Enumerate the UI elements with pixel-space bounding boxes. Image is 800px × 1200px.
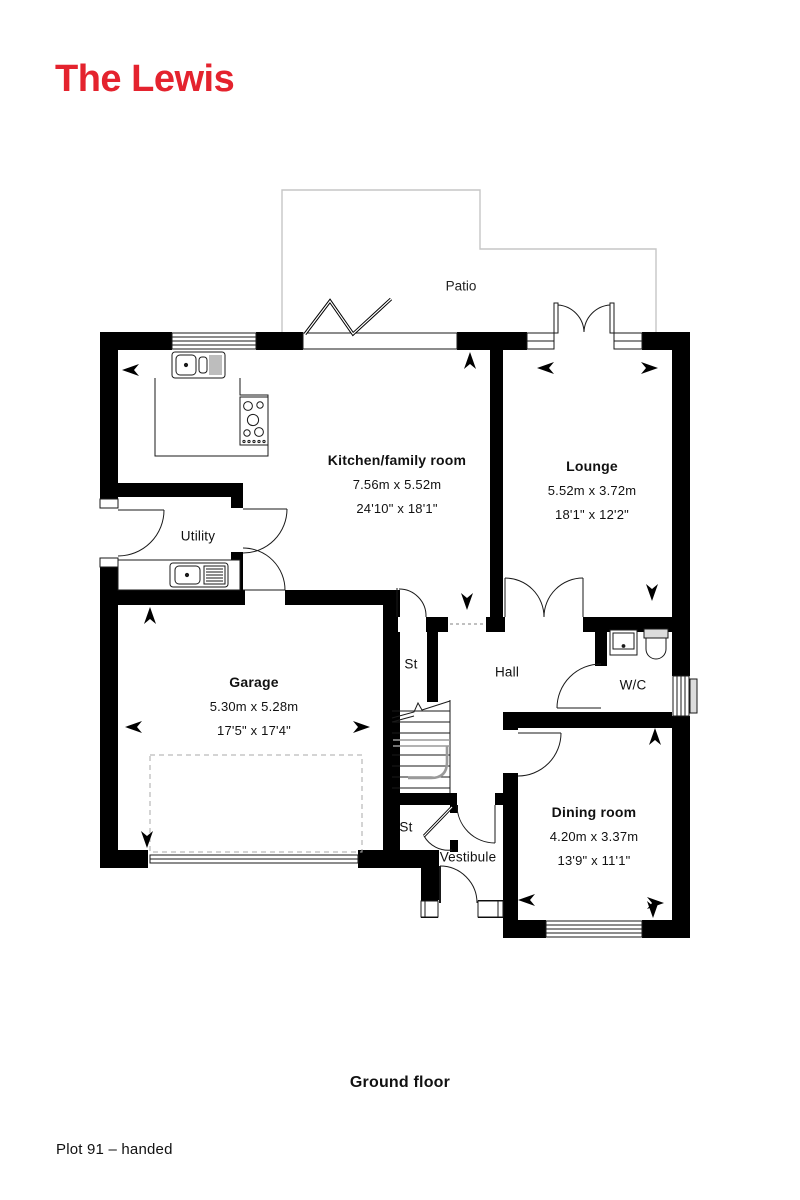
- room-metric: 5.52m x 3.72m: [548, 483, 637, 498]
- wc-door-icon: [557, 664, 601, 708]
- vestibule-hall-door-icon: [457, 805, 495, 843]
- storage-lower-door-icon: [424, 807, 452, 850]
- hall-label: Hall: [495, 665, 519, 680]
- kitchen-sink-icon: [172, 352, 225, 378]
- utility-worktop: [118, 560, 240, 590]
- room-name: Garage: [210, 674, 299, 690]
- room-metric: 5.30m x 5.28m: [210, 699, 299, 714]
- utility-label: Utility: [181, 529, 215, 544]
- floor-caption: Ground floor: [350, 1074, 450, 1092]
- room-metric: 7.56m x 5.52m: [328, 477, 466, 492]
- wc-window-icon: [673, 676, 697, 716]
- garage-parking-outline: [150, 755, 362, 852]
- room-label-garage: Garage 5.30m x 5.28m 17'5" x 17'4": [210, 674, 299, 738]
- room-imperial: 24'10" x 18'1": [328, 501, 466, 516]
- floorplan-page: The Lewis Patio Kitchen/family room 7.56…: [0, 0, 800, 1200]
- storage-upper-label: St: [404, 657, 417, 672]
- room-name: Lounge: [548, 458, 637, 474]
- room-metric: 4.20m x 3.37m: [550, 829, 639, 844]
- room-imperial: 17'5" x 17'4": [210, 723, 299, 738]
- wc-basin-icon: [610, 630, 637, 655]
- storage-lower-label: St: [399, 820, 412, 835]
- toilet-icon: [644, 629, 668, 659]
- lounge-double-doors-icon: [505, 578, 583, 617]
- patio-label: Patio: [446, 279, 477, 294]
- room-imperial: 18'1" x 12'2": [548, 507, 637, 522]
- room-label-lounge: Lounge 5.52m x 3.72m 18'1" x 12'2": [548, 458, 637, 522]
- kitchen-garage-door-icon: [243, 548, 285, 590]
- room-label-kitchen: Kitchen/family room 7.56m x 5.52m 24'10"…: [328, 452, 466, 516]
- hob-icon: [240, 397, 268, 445]
- stairs-handrail: [393, 740, 450, 778]
- storage-upper-door-icon: [397, 588, 426, 617]
- wc-label: W/C: [620, 678, 647, 693]
- kitchen-window-icon: [172, 333, 256, 349]
- plot-caption: Plot 91 – handed: [56, 1141, 173, 1158]
- dining-window-icon: [546, 921, 642, 937]
- room-name: Kitchen/family room: [328, 452, 466, 468]
- room-name: Dining room: [550, 804, 639, 820]
- vestibule-label: Vestibule: [440, 850, 497, 865]
- garage-door-icon: [150, 855, 358, 863]
- room-label-dining: Dining room 4.20m x 3.37m 13'9" x 11'1": [550, 804, 639, 868]
- page-title: The Lewis: [55, 58, 234, 101]
- floorplan-drawing: [0, 0, 800, 1200]
- utility-kitchen-door-icon: [243, 509, 287, 553]
- room-imperial: 13'9" x 11'1": [550, 853, 639, 868]
- dining-door-icon: [518, 733, 561, 776]
